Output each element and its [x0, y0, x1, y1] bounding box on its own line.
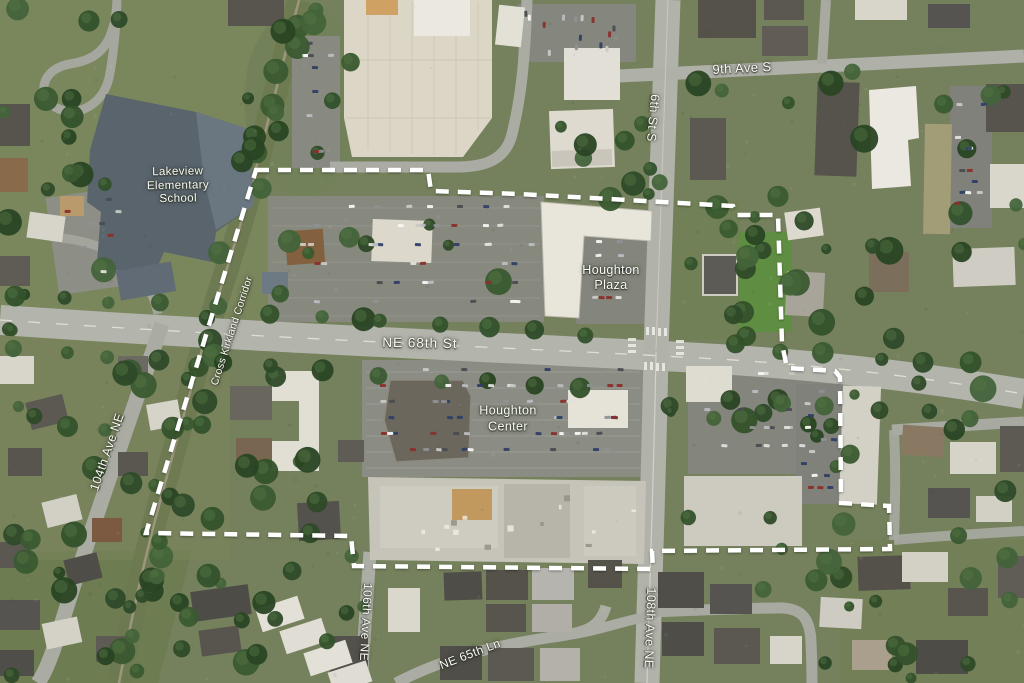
car [596, 432, 602, 435]
tree-highlight [211, 244, 222, 255]
car [756, 444, 762, 447]
tree-highlight [174, 496, 186, 508]
tree-highlight [756, 406, 765, 415]
car [416, 224, 422, 227]
car [454, 243, 460, 246]
car [511, 262, 517, 265]
tree-highlight [309, 494, 319, 504]
car [65, 210, 71, 213]
roof-vent [485, 545, 491, 550]
car [529, 243, 535, 246]
tree-highlight [175, 642, 184, 651]
car [551, 432, 557, 435]
tree-highlight [854, 128, 868, 142]
tree-highlight [195, 417, 204, 426]
car [510, 384, 516, 387]
tree-highlight [843, 447, 853, 457]
car [308, 243, 314, 246]
tree-highlight [871, 596, 877, 602]
tree-highlight [867, 240, 875, 248]
tree-highlight [104, 298, 110, 304]
label-houghton-plaza: Houghton Plaza [582, 263, 639, 293]
tree-highlight [254, 180, 264, 190]
tree-highlight [298, 450, 311, 463]
tree-highlight [951, 204, 963, 216]
tree-highlight [765, 512, 772, 519]
tree-highlight [59, 292, 66, 299]
car [106, 198, 112, 201]
car [587, 384, 593, 387]
tree-highlight [873, 403, 882, 412]
label-line: Lakeview [147, 165, 209, 180]
car [557, 384, 563, 387]
tree-highlight [317, 312, 324, 319]
tree-highlight [64, 91, 74, 101]
tree-highlight [113, 13, 121, 21]
tree-highlight [624, 174, 636, 186]
car [436, 448, 442, 451]
tree-highlight [835, 515, 847, 527]
tree-highlight [770, 188, 781, 199]
label-line: Elementary [147, 179, 209, 194]
roof-vent [507, 525, 513, 531]
tree-highlight [274, 287, 283, 296]
tree-highlight [342, 229, 352, 239]
tree-highlight [7, 288, 17, 298]
tree-highlight [6, 669, 14, 677]
label-line: Houghton [479, 404, 536, 420]
car [817, 486, 823, 489]
car [410, 262, 416, 265]
roof-vent [632, 510, 637, 513]
tree-highlight [825, 420, 833, 428]
car [457, 205, 463, 208]
car [468, 448, 474, 451]
car [605, 46, 608, 52]
car [423, 368, 429, 371]
tree-highlight [81, 13, 92, 24]
tree-highlight [888, 638, 898, 648]
car [524, 11, 527, 17]
tree-highlight [784, 98, 790, 104]
tree-highlight [775, 396, 784, 405]
tree-highlight [877, 354, 884, 361]
car [375, 205, 381, 208]
tree-highlight [108, 590, 118, 600]
tree-highlight [845, 603, 850, 608]
car [959, 191, 965, 194]
tree-highlight [269, 106, 278, 115]
tree-highlight [355, 310, 367, 322]
car [314, 262, 320, 265]
car [445, 384, 451, 387]
car [422, 281, 428, 284]
car [398, 224, 404, 227]
label-line: Plaza [582, 278, 639, 293]
tree-highlight [952, 529, 960, 537]
tree-highlight [436, 376, 443, 383]
tree-highlight [127, 630, 134, 637]
tree-highlight [181, 609, 191, 619]
car [972, 180, 978, 183]
tree-highlight [812, 312, 825, 325]
car [617, 240, 623, 243]
roof-vent [586, 544, 592, 547]
car [955, 136, 961, 139]
tree-highlight [267, 61, 280, 74]
car [612, 25, 615, 31]
tree-highlight [64, 524, 77, 537]
car [604, 448, 610, 451]
car [328, 54, 334, 57]
tree-highlight [269, 613, 277, 621]
label-street-9th-ave-s: 9th Ave S [712, 59, 772, 77]
car [381, 432, 387, 435]
roof-vent [453, 530, 459, 535]
car [808, 414, 814, 417]
car [799, 444, 805, 447]
tree-highlight [137, 590, 144, 597]
label-line: Center [479, 419, 536, 435]
car [604, 416, 610, 419]
car [812, 474, 818, 477]
car [451, 224, 457, 227]
tree-highlight [245, 139, 257, 151]
car [486, 281, 492, 284]
tree-highlight [601, 189, 613, 201]
label-street-108th-ave-ne: 108th Ave NE [642, 587, 659, 668]
tree-highlight [314, 362, 325, 373]
tree-highlight [341, 607, 349, 615]
car [306, 114, 312, 117]
car [618, 368, 624, 371]
tree-highlight [846, 65, 854, 73]
car [977, 191, 983, 194]
car [115, 210, 121, 213]
car [313, 150, 319, 153]
car [562, 15, 565, 21]
tree-highlight [954, 244, 964, 254]
label-houghton-center: Houghton Center [479, 404, 536, 435]
tree-highlight [890, 659, 898, 667]
tree-highlight [577, 136, 589, 148]
car [410, 448, 416, 451]
car [389, 400, 395, 403]
tree-highlight [822, 73, 835, 86]
tree-highlight [236, 614, 244, 622]
tree-highlight [374, 315, 381, 322]
car [764, 444, 770, 447]
tree-highlight [132, 665, 139, 672]
car [477, 384, 483, 387]
car [504, 448, 510, 451]
tree-highlight [728, 336, 738, 346]
car [738, 408, 744, 411]
tree-highlight [304, 12, 317, 25]
tree-highlight [739, 247, 750, 258]
tree-highlight [1011, 200, 1018, 207]
car [514, 300, 520, 303]
car [543, 22, 546, 28]
car [966, 147, 972, 150]
tree-highlight [654, 176, 662, 184]
tree-highlight [962, 569, 973, 580]
car [394, 281, 400, 284]
tree-highlight [360, 237, 368, 245]
car [784, 426, 790, 429]
tree-highlight [249, 646, 260, 657]
car [99, 222, 105, 225]
tree-highlight [686, 258, 693, 265]
tree-highlight [7, 325, 13, 331]
tree-highlight [924, 405, 932, 413]
tree-highlight [55, 568, 61, 574]
car [809, 450, 815, 453]
car [750, 426, 756, 429]
car [579, 35, 582, 41]
car [470, 300, 476, 303]
tree-highlight [172, 595, 182, 605]
car [486, 243, 492, 246]
tree-highlight [997, 482, 1008, 493]
car [504, 205, 510, 208]
car [406, 205, 412, 208]
tree-highlight [820, 658, 827, 665]
car [956, 103, 962, 106]
building-east-commercial [684, 476, 802, 546]
tree-highlight [204, 509, 216, 521]
tree-highlight [195, 392, 208, 405]
car [423, 448, 429, 451]
car [758, 372, 764, 375]
tree-highlight [14, 402, 20, 408]
car [550, 448, 556, 451]
roof-vent [451, 520, 457, 526]
roof-vent [422, 530, 426, 534]
tree-highlight [265, 360, 272, 367]
tree-highlight [23, 531, 33, 541]
roof-vent [564, 495, 570, 501]
tree-highlight [782, 275, 794, 287]
label-lakeview-elementary-school: Lakeview Elementary School [147, 165, 210, 207]
car [388, 416, 394, 419]
tree-highlight [962, 354, 973, 365]
tree-highlight [253, 487, 266, 500]
car [462, 448, 468, 451]
car [607, 384, 613, 387]
tree-highlight [281, 232, 293, 244]
car [442, 448, 448, 451]
car [545, 368, 551, 371]
tree-highlight [150, 480, 157, 487]
tree-highlight [528, 378, 537, 387]
tree-highlight [999, 549, 1010, 560]
tree-highlight [64, 166, 73, 175]
tree-highlight [851, 390, 856, 395]
tree-highlight [43, 184, 50, 191]
car [789, 372, 795, 375]
tree-highlight [757, 583, 765, 591]
tree-highlight [734, 410, 747, 423]
tree-highlight [271, 123, 281, 133]
car [821, 438, 827, 441]
tree-highlight [183, 373, 190, 380]
car [312, 66, 318, 69]
car [430, 432, 436, 435]
tree-highlight [983, 87, 993, 97]
car [582, 432, 588, 435]
car [441, 400, 447, 403]
car [307, 42, 313, 45]
car [831, 438, 837, 441]
tree-highlight [201, 312, 209, 320]
car [580, 15, 583, 21]
tree-highlight [812, 431, 819, 438]
tree-highlight [774, 345, 782, 353]
roof-vent [444, 525, 449, 529]
car [528, 15, 531, 21]
car [308, 54, 314, 57]
tree-highlight [527, 322, 537, 332]
car [464, 432, 470, 435]
building-bigbox-store [368, 477, 646, 564]
car [447, 416, 453, 419]
tree-highlight [63, 348, 69, 354]
tree-highlight [100, 179, 107, 186]
label-line: Houghton [582, 263, 639, 278]
tree-highlight [200, 566, 212, 578]
car [805, 426, 811, 429]
tree-highlight [205, 346, 217, 358]
car [314, 300, 320, 303]
tree-highlight [28, 410, 36, 418]
tree-highlight [60, 418, 71, 429]
car [380, 384, 386, 387]
label-line: School [147, 192, 209, 207]
tree-highlight [304, 248, 310, 254]
car [512, 281, 518, 284]
tree-highlight [636, 118, 644, 126]
car [575, 432, 581, 435]
tree-highlight [644, 189, 650, 195]
car [704, 408, 710, 411]
tree-highlight [7, 342, 16, 351]
tree-highlight [444, 241, 450, 247]
car [101, 270, 107, 273]
car [453, 432, 459, 435]
tree-highlight [683, 511, 691, 519]
tree-highlight [748, 227, 758, 237]
car [483, 205, 489, 208]
label-street-ne-68th-st: NE 68th St [382, 335, 458, 351]
tree-highlight [962, 658, 970, 666]
car [596, 240, 602, 243]
car [81, 246, 87, 249]
car [592, 296, 598, 299]
car [387, 432, 393, 435]
tree-highlight [756, 244, 765, 253]
car [314, 224, 320, 227]
car [617, 384, 623, 387]
tree-highlight [244, 94, 250, 100]
car [786, 408, 792, 411]
tree-highlight [708, 412, 716, 420]
tree-highlight [946, 421, 957, 432]
tree-highlight [913, 377, 921, 385]
tree-highlight [817, 398, 827, 408]
tree-highlight [750, 212, 756, 218]
tree-highlight [663, 399, 672, 408]
car [434, 224, 440, 227]
car [462, 384, 468, 387]
tree-highlight [964, 412, 973, 421]
tree-highlight [17, 552, 29, 564]
car [377, 281, 383, 284]
tree-highlight [726, 307, 736, 317]
tree-highlight [263, 307, 273, 317]
car [461, 368, 467, 371]
tree-highlight [274, 21, 287, 34]
car [981, 103, 987, 106]
tree-highlight [481, 374, 489, 382]
tree-highlight [125, 602, 132, 609]
tree-highlight [915, 354, 925, 364]
tree-highlight [879, 240, 893, 254]
car [457, 416, 463, 419]
car [598, 296, 604, 299]
car [380, 400, 386, 403]
car [721, 444, 727, 447]
tree-highlight [321, 635, 329, 643]
car [608, 31, 611, 37]
car [420, 262, 426, 265]
tree-highlight [802, 418, 810, 426]
car [433, 400, 439, 403]
roof-vent [559, 505, 562, 510]
tree-highlight [326, 94, 334, 102]
tree-highlight [572, 380, 582, 390]
tree-highlight [819, 551, 832, 564]
aerial-map: Lakeview Elementary School Houghton Plaz… [0, 0, 1024, 683]
tree-highlight [163, 489, 172, 498]
car [591, 17, 594, 23]
car [824, 474, 830, 477]
car [372, 243, 378, 246]
car [502, 262, 508, 265]
car [801, 462, 807, 465]
tree-highlight [1003, 593, 1011, 601]
car [959, 169, 965, 172]
tree-highlight [153, 295, 162, 304]
car [497, 224, 503, 227]
car [618, 254, 624, 257]
tree-highlight [99, 649, 108, 658]
tree-highlight [617, 133, 627, 143]
car [965, 191, 971, 194]
car [606, 296, 612, 299]
tree-highlight [9, 0, 20, 11]
car [612, 416, 618, 419]
tree-highlight [164, 419, 175, 430]
car [954, 202, 960, 205]
car [567, 400, 573, 403]
tree-highlight [808, 572, 819, 583]
car [312, 90, 318, 93]
tree-highlight [255, 593, 267, 605]
car [827, 486, 833, 489]
tree-highlight [344, 55, 353, 64]
tree-highlight [667, 408, 672, 413]
